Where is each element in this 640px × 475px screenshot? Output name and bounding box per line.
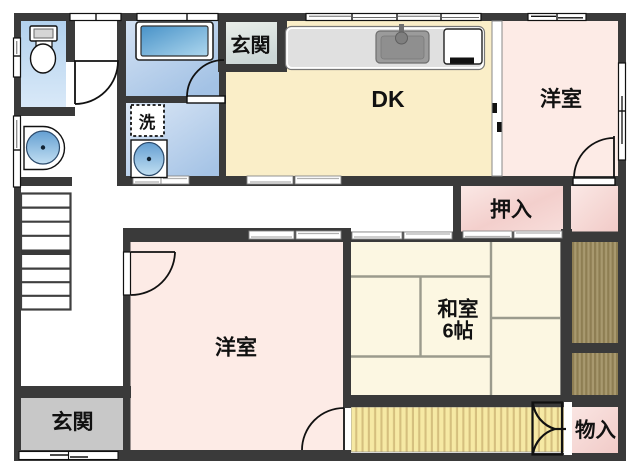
svg-text:洋室: 洋室 [215,336,257,360]
svg-text:洗: 洗 [139,112,156,132]
svg-text:物入: 物入 [575,418,616,442]
svg-text:玄関: 玄関 [231,33,271,57]
svg-text:洋室: 洋室 [540,87,582,111]
svg-text:和室: 和室 [438,297,479,321]
svg-text:DK: DK [371,86,405,112]
svg-text:押入: 押入 [490,198,532,222]
svg-text:6帖: 6帖 [442,320,473,343]
svg-text:玄関: 玄関 [52,410,94,434]
